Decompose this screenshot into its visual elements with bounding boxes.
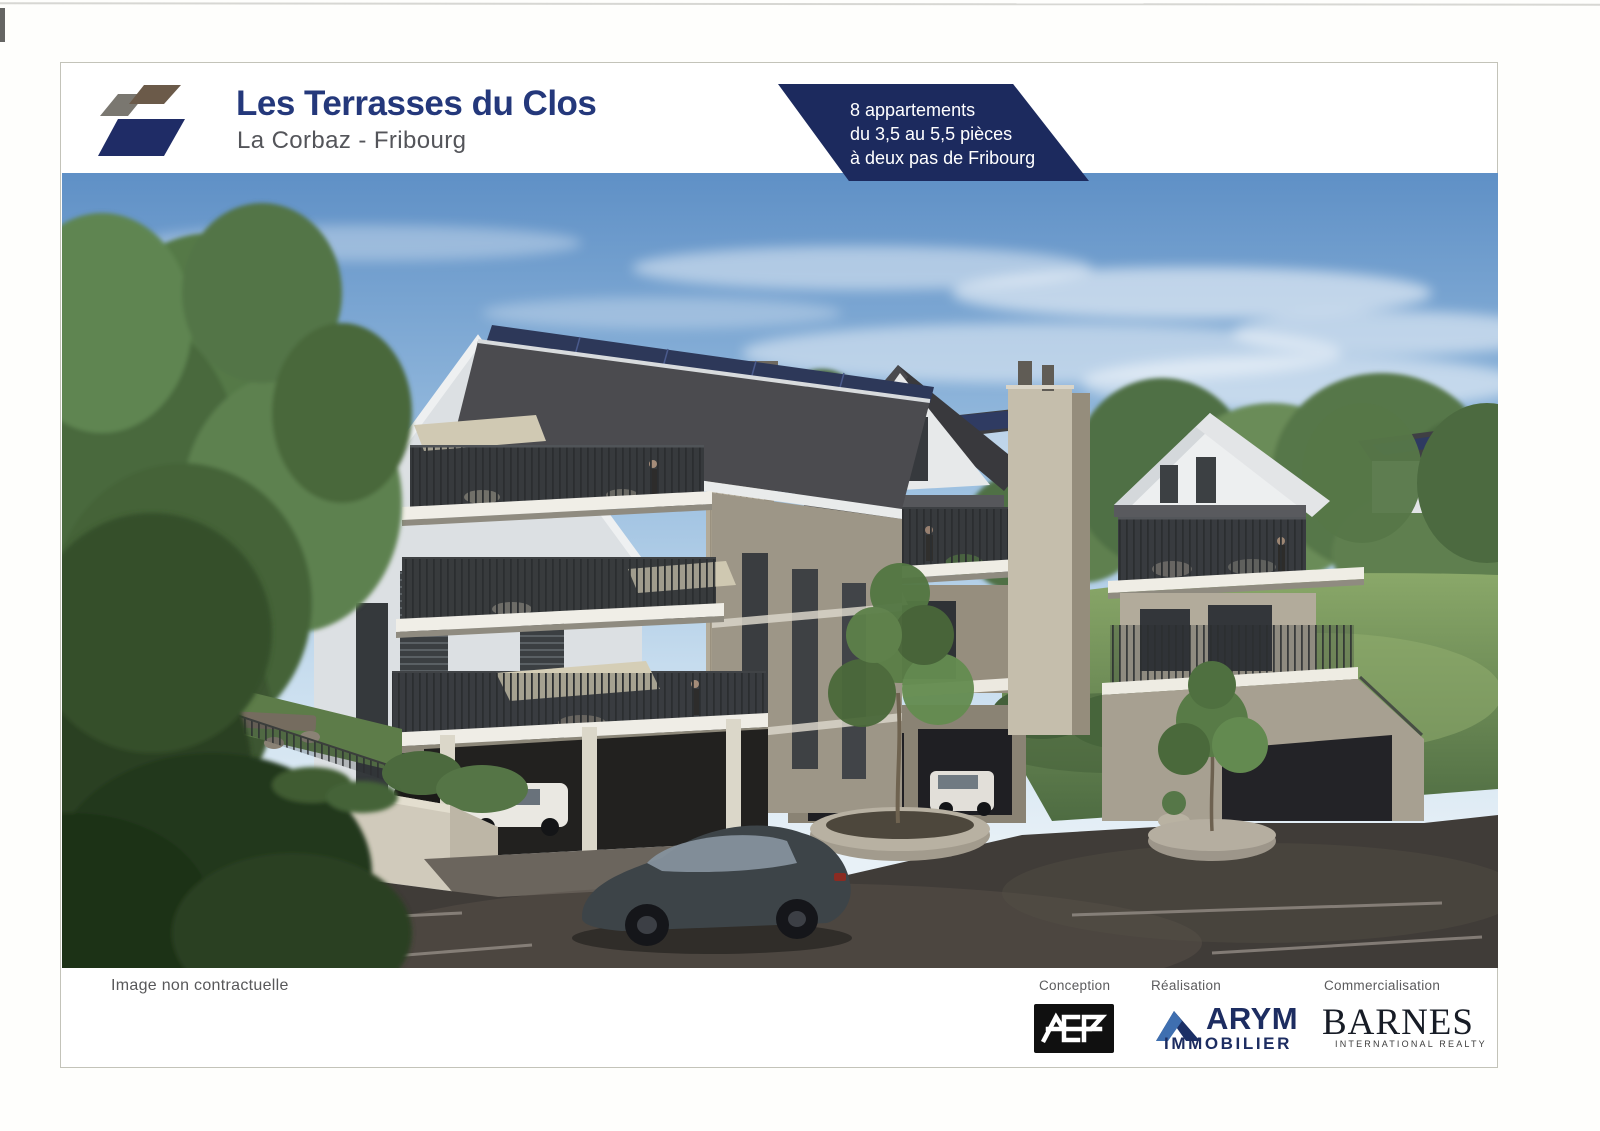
offer-badge: 8 appartements du 3,5 au 5,5 pièces à de…	[778, 84, 1089, 181]
arym-subname: IMMOBILIER	[1164, 1034, 1292, 1054]
partner-role-conception: Conception	[1039, 978, 1110, 993]
badge-line-1: 8 appartements	[850, 98, 1089, 122]
page-subtitle: La Corbaz - Fribourg	[237, 127, 466, 155]
brochure-page: Les Terrasses du Clos La Corbaz - Fribou…	[0, 0, 1600, 1131]
partner-role-commercialisation: Commercialisation	[1324, 978, 1440, 993]
barnes-subname: INTERNATIONAL REALTY	[1335, 1039, 1487, 1049]
partner-role-realisation: Réalisation	[1151, 978, 1221, 993]
page-title: Les Terrasses du Clos	[236, 84, 596, 124]
property-rendering-image	[62, 173, 1498, 968]
acp-logo-glyph	[1034, 1004, 1114, 1053]
badge-line-2: du 3,5 au 5,5 pièces	[850, 122, 1089, 146]
image-disclaimer: Image non contractuelle	[111, 977, 289, 995]
content-frame: Les Terrasses du Clos La Corbaz - Fribou…	[60, 62, 1498, 1068]
scan-artifact-mark	[0, 8, 5, 42]
barnes-name: BARNES	[1322, 1001, 1474, 1044]
arym-name: ARYM	[1206, 1001, 1298, 1037]
terraces-logo-icon	[98, 85, 186, 157]
acp-logo	[1034, 1004, 1114, 1053]
scan-artifact-line	[0, 2, 1600, 5]
badge-line-3: à deux pas de Fribourg	[850, 146, 1089, 170]
